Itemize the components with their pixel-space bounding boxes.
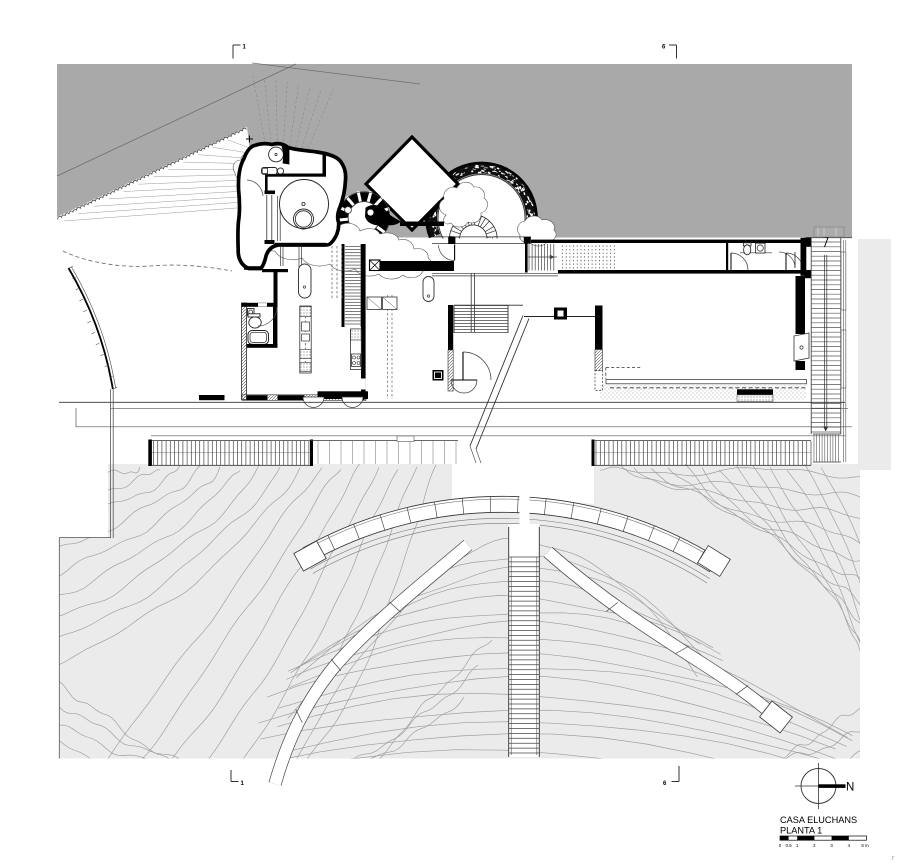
svg-text:N: N: [846, 782, 854, 794]
svg-text:0.5: 0.5: [786, 843, 793, 848]
svg-text:5 m: 5 m: [861, 843, 869, 848]
svg-text:CASA ELUCHANS: CASA ELUCHANS: [780, 815, 857, 825]
svg-text:PLANTA 1: PLANTA 1: [780, 826, 822, 836]
